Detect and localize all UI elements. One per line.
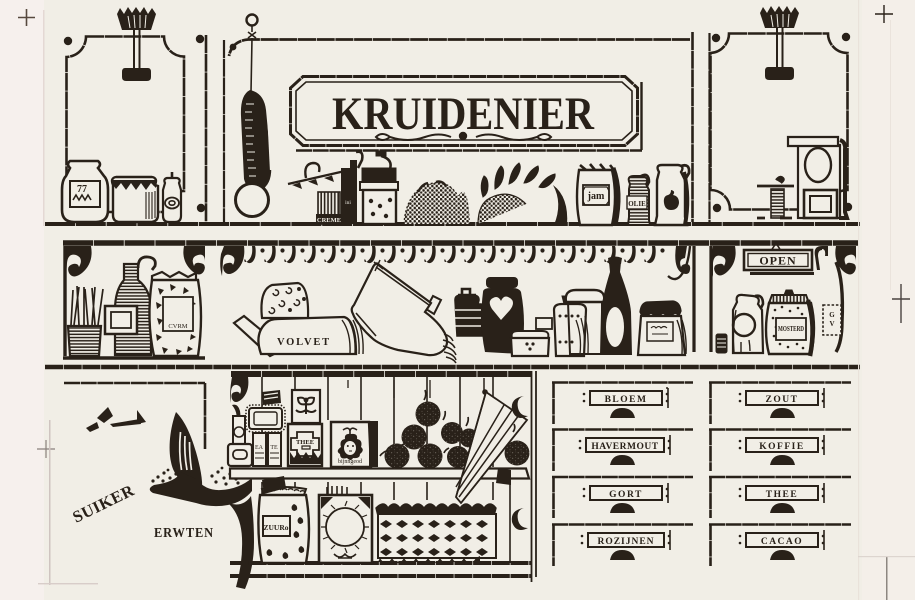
svg-text:OPEN: OPEN [759,254,796,268]
svg-text:bijnngeod: bijnngeod [338,459,362,465]
svg-text:BLOEM: BLOEM [605,395,648,405]
svg-text:THEE: THEE [296,439,314,446]
svg-text:CVRM: CVRM [168,323,187,330]
svg-text:MOSTERD: MOSTERD [778,326,804,333]
svg-text:ZUURo: ZUURo [263,523,288,532]
svg-text:THEE: THEE [766,490,798,500]
svg-text:jam: jam [587,191,605,202]
svg-text:ERWTEN: ERWTEN [154,526,214,541]
svg-text:VOLVET: VOLVET [277,337,331,348]
svg-text:GORT: GORT [609,490,643,500]
svg-text:EA: EA [255,445,264,451]
svg-text:G: G [829,311,835,319]
svg-text:HAVERMOUT: HAVERMOUT [591,442,658,452]
svg-text:ZOUT: ZOUT [766,395,799,405]
svg-text:CREME: CREME [317,217,341,224]
svg-text:ini: ini [345,200,351,206]
svg-text:TE: TE [270,445,278,451]
svg-text:CACAO: CACAO [761,537,803,547]
svg-text:OLIE: OLIE [628,200,646,208]
svg-text:77: 77 [77,184,87,195]
svg-text:V: V [829,320,834,328]
svg-text:KOFFIE: KOFFIE [759,442,804,452]
svg-text:ROZIJNEN: ROZIJNEN [597,537,654,547]
